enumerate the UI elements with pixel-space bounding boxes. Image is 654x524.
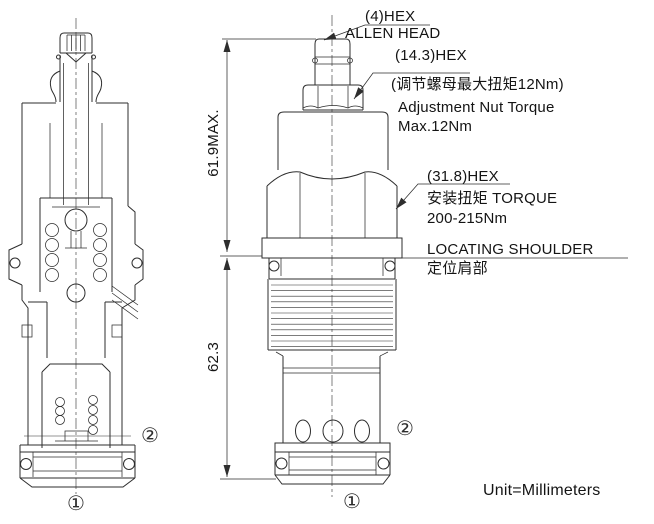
callout-install-hex-line1: (31.8)HEX [427,169,499,186]
ext-port1-balloon: ① [343,492,361,512]
callout-install-hex-line2: 安装扭矩 TORQUE [427,191,557,208]
callout-locating-shoulder-line2: 定位肩部 [427,261,488,278]
ext-lock-nut [303,85,363,110]
section-port1-balloon: ① [67,494,85,514]
section-view [9,18,143,494]
callout-allen-head-line2: ALLEN HEAD [345,26,440,43]
ext-port2-balloon: ② [396,419,414,439]
ext-upper-body [278,112,388,170]
callout-adjustment-nut-line4: Max.12Nm [398,119,472,136]
spring-coils-lower [56,396,98,435]
section-internals [24,123,138,448]
ext-nose [275,443,390,484]
external-view [262,15,402,497]
ext-lower-cylinder [283,356,380,443]
callout-locating-shoulder-line1: LOCATING SHOULDER [427,242,593,259]
callout-adjustment-nut-line2: (调节螺母最大扭矩12Nm) [391,77,564,94]
callout-allen-head-line1: (4)HEX [365,9,415,26]
technical-drawing: (4)HEX ALLEN HEAD (14.3)HEX (调节螺母最大扭矩12N… [0,0,654,524]
callout-adjustment-nut-line1: (14.3)HEX [395,48,467,65]
callout-install-hex-line3: 200-215Nm [427,211,507,228]
dim-label-upper-height: 61.9MAX. [206,109,223,176]
ext-adjusting-screw [313,39,353,85]
dim-label-lower-height: 62.3 [206,342,223,372]
callout-adjustment-nut-line3: Adjustment Nut Torque [398,100,555,117]
section-nose [20,445,135,487]
section-port2-balloon: ② [141,426,159,446]
unit-note: Unit=Millimeters [483,482,600,500]
